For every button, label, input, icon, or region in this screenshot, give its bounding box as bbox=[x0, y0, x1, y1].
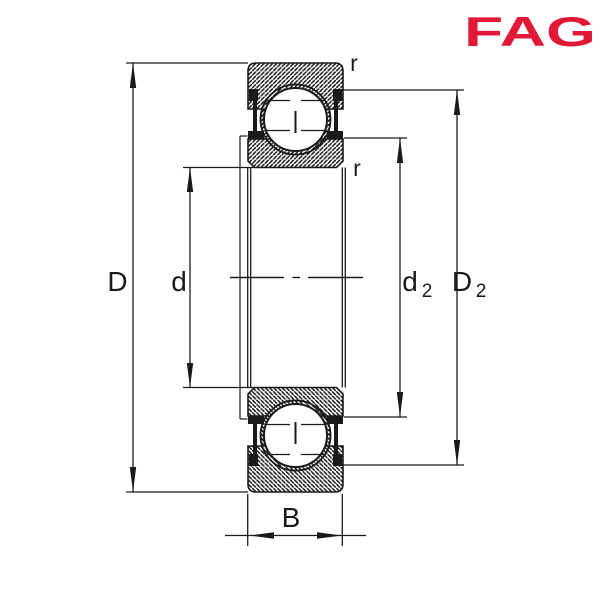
dim-label-D: D bbox=[107, 266, 127, 297]
dim-label-d: d bbox=[171, 266, 187, 297]
dim-label-B: B bbox=[282, 502, 301, 533]
bearing-bottom-half-section bbox=[248, 388, 343, 493]
dim-label-D2-subscript: 2 bbox=[476, 281, 487, 302]
fag-logo: FAG bbox=[464, 8, 596, 55]
dim-label-D2-base: D bbox=[452, 266, 472, 297]
dim-label-d2-subscript: 2 bbox=[422, 281, 433, 302]
bearing-technical-drawing: FAG bbox=[0, 0, 600, 600]
chamfer-label-r-top: r bbox=[350, 50, 358, 76]
dim-label-d2-base: d bbox=[402, 266, 418, 297]
bearing-top-half-section bbox=[248, 63, 343, 168]
chamfer-label-r-inner: r bbox=[353, 155, 361, 181]
